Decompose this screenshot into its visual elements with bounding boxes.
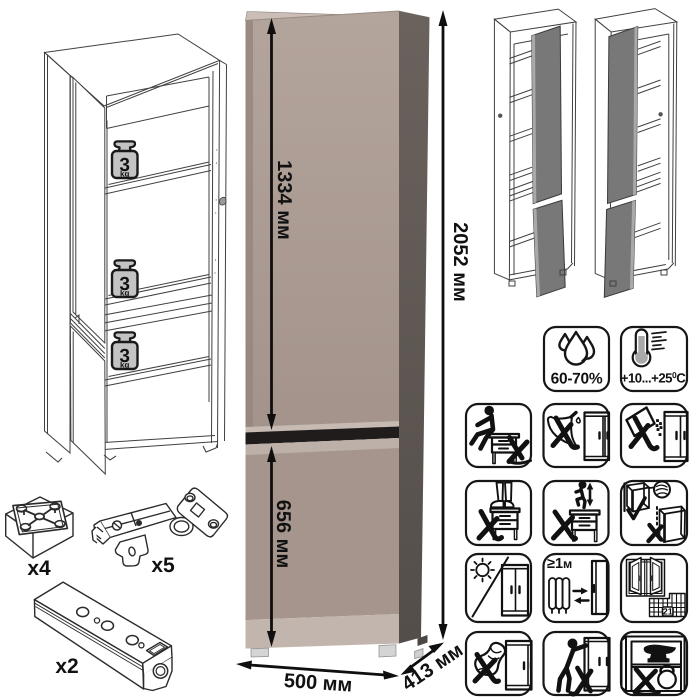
svg-text:21: 21 (663, 607, 673, 617)
svg-text:≥1м: ≥1м (547, 556, 572, 572)
svg-text:x4: x4 (27, 557, 51, 580)
svg-text:+10...+250C: +10...+250C (621, 370, 686, 386)
svg-text:x2: x2 (55, 655, 78, 678)
svg-text:2052 мм: 2052 мм (449, 222, 471, 302)
svg-text:1334 мм: 1334 мм (273, 160, 295, 240)
svg-text:500 мм: 500 мм (283, 670, 353, 697)
svg-text:x5: x5 (151, 554, 175, 577)
svg-text:656 мм: 656 мм (272, 500, 294, 569)
svg-text:60-70%: 60-70% (551, 371, 603, 388)
